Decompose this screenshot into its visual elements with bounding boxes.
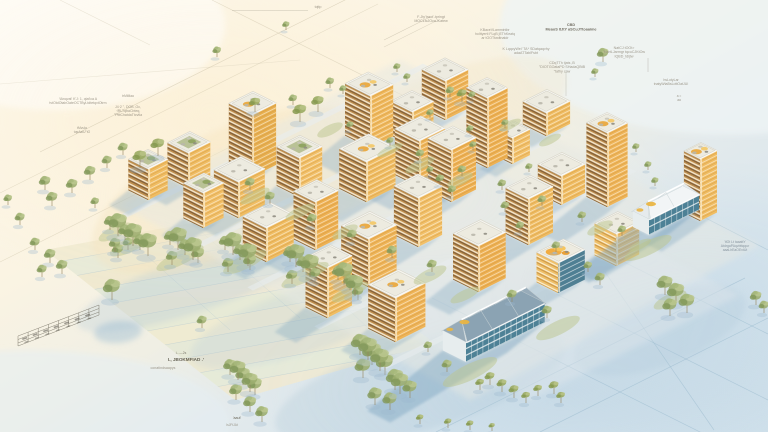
svg-text:a =aa: a =aa — [677, 94, 682, 102]
svg-text:I., JBOKMFIAD .’: I., JBOKMFIAD .’ — [168, 357, 204, 362]
svg-text:'tlOt Lt taaattYAtdrgaPAqzbttq: 'tlOt Lt taaattYAtdrgaPAqzbttqquraaaLhEa… — [721, 240, 750, 252]
svg-text:conatindsaapys: conatindsaapys — [151, 366, 176, 370]
svg-text:IsJFtJAt: IsJFtJAt — [226, 423, 238, 427]
svg-text:'aaut': 'aaut' — [233, 416, 242, 420]
svg-text:J4·2 ", DOB ,Oc,·/RLTqbaCbteq,: J4·2 ", DOB ,Oc,·/RLTqbaCbteq,"PtttChatd… — [114, 105, 142, 117]
svg-text:trMtMaa: trMtMaa — [122, 94, 134, 98]
svg-text:i...—2s: i...—2s — [176, 351, 187, 355]
svg-text:F-Jty'traot'-tpringtMOCLtcJOca: F-Jty'traot'-tpringtMOCLtcJOcaJKatew — [414, 15, 448, 23]
svg-text:tqttp: tqttp — [315, 5, 322, 9]
